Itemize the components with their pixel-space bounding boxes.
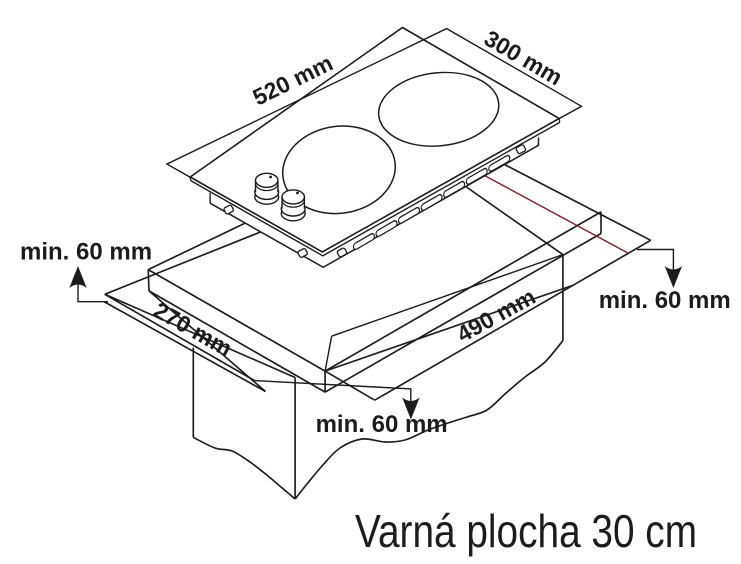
svg-text:min. 60 mm: min. 60 mm [20,239,152,266]
svg-text:min. 60 mm: min. 60 mm [599,287,731,314]
svg-text:Varná plocha 30 cm: Varná plocha 30 cm [355,505,697,557]
svg-text:min. 60 mm: min. 60 mm [316,411,448,438]
